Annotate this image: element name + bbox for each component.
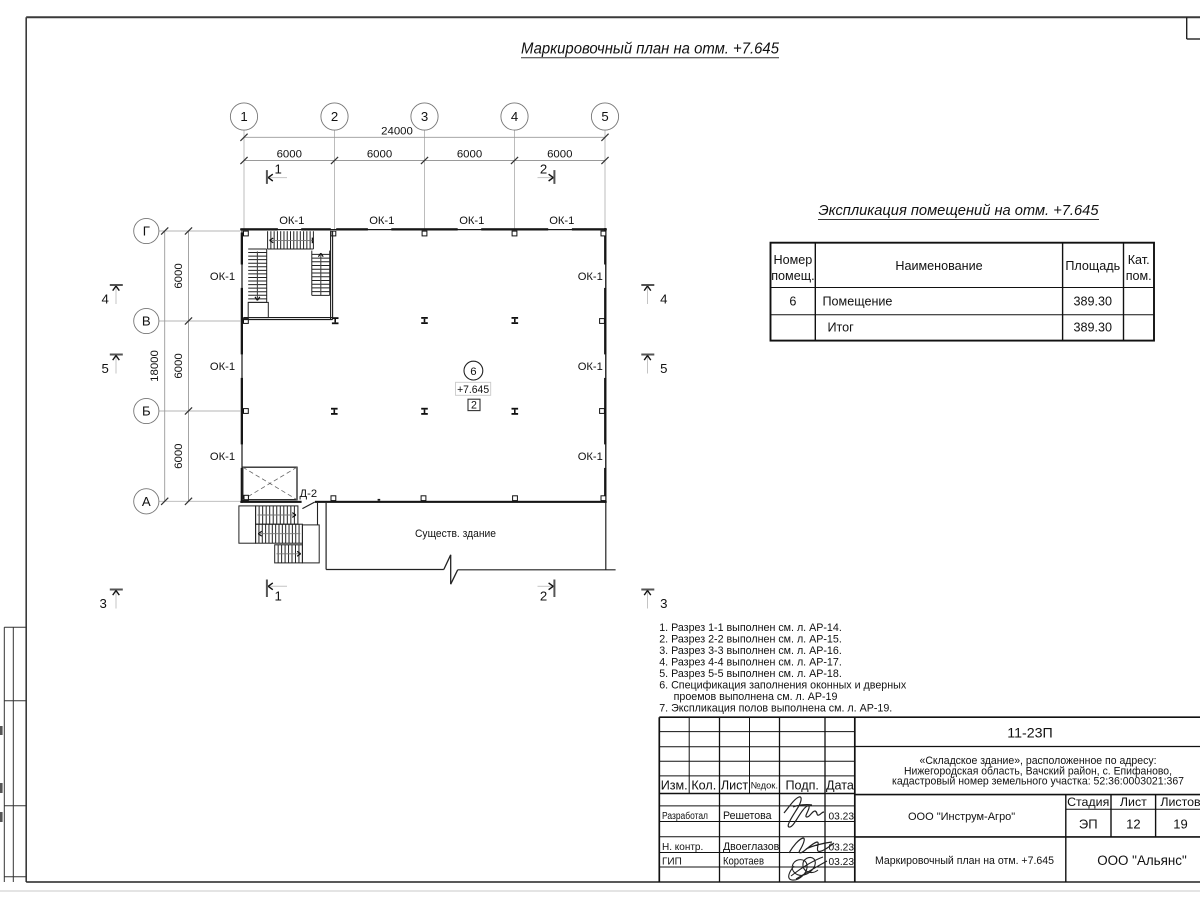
svg-text:Д-2: Д-2 — [300, 488, 318, 500]
svg-text:Маркировочный план на отм. +7.: Маркировочный план на отм. +7.645 — [521, 41, 779, 58]
svg-text:6000: 6000 — [173, 353, 185, 378]
svg-text:А: А — [142, 494, 151, 509]
svg-text:Разработал: Разработал — [662, 810, 708, 822]
svg-text:5. Разрез 5-5 выполнен см. л.: 5. Разрез 5-5 выполнен см. л. АР-18. — [659, 668, 842, 680]
svg-text:4: 4 — [102, 292, 109, 307]
svg-text:6000: 6000 — [367, 148, 392, 160]
svg-text:Существ. здание: Существ. здание — [415, 528, 496, 540]
svg-text:2: 2 — [540, 162, 547, 177]
svg-text:2: 2 — [331, 109, 338, 124]
svg-text:ОК-1: ОК-1 — [210, 451, 235, 463]
svg-text:№док.: №док. — [751, 779, 778, 790]
svg-text:3. Разрез 3-3 выполнен см. л.: 3. Разрез 3-3 выполнен см. л. АР-16. — [659, 645, 842, 657]
svg-text:помещ.: помещ. — [771, 269, 814, 283]
svg-text:В: В — [142, 314, 151, 329]
svg-text:ГИП: ГИП — [662, 856, 682, 867]
svg-text:Стадия: Стадия — [1067, 795, 1109, 809]
svg-text:Итог: Итог — [828, 321, 855, 335]
svg-text:4. Разрез 4-4 выполнен см. л.: 4. Разрез 4-4 выполнен см. л. АР-17. — [659, 656, 842, 668]
svg-text:Наименование: Наименование — [895, 259, 982, 273]
svg-text:6. Спецификация заполнения око: 6. Спецификация заполнения оконных и две… — [659, 680, 907, 692]
svg-text:ОК-1: ОК-1 — [369, 215, 394, 227]
svg-text:ООО "Инструм-Агро": ООО "Инструм-Агро" — [908, 811, 1015, 823]
svg-text:кадастровый номер земельного у: кадастровый номер земельного участка: 52… — [892, 776, 1184, 788]
svg-text:Подп.: Подп. — [785, 778, 818, 792]
svg-text:6000: 6000 — [457, 148, 482, 160]
svg-text:Н. контр.: Н. контр. — [662, 842, 703, 853]
svg-text:6000: 6000 — [173, 263, 185, 288]
svg-text:ОК-1: ОК-1 — [210, 271, 235, 283]
svg-text:проемов выполнена см. л. АР-19: проемов выполнена см. л. АР-19 — [674, 691, 838, 703]
svg-text:389.30: 389.30 — [1074, 321, 1113, 335]
svg-text:ОК-1: ОК-1 — [549, 215, 574, 227]
svg-text:3: 3 — [660, 596, 667, 611]
svg-text:ОК-1: ОК-1 — [578, 361, 603, 373]
svg-text:Кол.: Кол. — [691, 778, 716, 792]
svg-text:6000: 6000 — [547, 148, 572, 160]
svg-text:1: 1 — [275, 162, 282, 177]
svg-text:4: 4 — [660, 292, 667, 307]
svg-text:12: 12 — [1126, 817, 1140, 832]
svg-text:ООО "Альянс": ООО "Альянс" — [1097, 853, 1187, 868]
svg-text:5: 5 — [102, 361, 109, 376]
svg-text:6: 6 — [470, 366, 476, 378]
svg-text:2. Разрез 2-2 выполнен см. л.: 2. Разрез 2-2 выполнен см. л. АР-15. — [659, 633, 842, 645]
svg-text:ОК-1: ОК-1 — [210, 361, 235, 373]
svg-text:Экспликация помещений на отм.: Экспликация помещений на отм. +7.645 — [819, 202, 1100, 219]
svg-text:Изм.: Изм. — [661, 778, 688, 792]
svg-text:24000: 24000 — [381, 126, 413, 138]
svg-text:5: 5 — [601, 109, 608, 124]
svg-text:2: 2 — [540, 589, 547, 604]
svg-text:Г: Г — [143, 224, 150, 239]
svg-text:Кат.: Кат. — [1128, 253, 1150, 267]
svg-text:Лист: Лист — [1120, 795, 1147, 809]
svg-text:6000: 6000 — [277, 148, 302, 160]
svg-text:ЭП: ЭП — [1079, 817, 1098, 832]
svg-text:Двоеглазов: Двоеглазов — [723, 841, 780, 853]
svg-text:Помещение: Помещение — [823, 295, 893, 309]
svg-text:ОК-1: ОК-1 — [459, 215, 484, 227]
svg-text:Номер: Номер — [774, 253, 813, 267]
svg-text:3: 3 — [421, 109, 428, 124]
svg-text:18000: 18000 — [149, 350, 161, 382]
svg-text:11-23П: 11-23П — [1007, 725, 1052, 741]
svg-text:Маркировочный план на отм. +7.: Маркировочный план на отм. +7.645 — [875, 855, 1054, 867]
svg-text:Решетова: Решетова — [723, 810, 772, 822]
svg-text:пом.: пом. — [1126, 269, 1152, 283]
svg-text:Лист: Лист — [721, 778, 749, 792]
svg-text:Коротаев: Коротаев — [723, 855, 764, 867]
svg-text:Б: Б — [142, 404, 151, 419]
svg-text:4: 4 — [511, 109, 518, 124]
svg-text:5: 5 — [660, 361, 667, 376]
svg-text:3: 3 — [100, 596, 107, 611]
svg-text:19: 19 — [1173, 817, 1187, 832]
svg-text:389.30: 389.30 — [1074, 295, 1113, 309]
svg-text:Листов: Листов — [1160, 795, 1200, 809]
svg-text:7. Экспликация полов выполнена: 7. Экспликация полов выполнена см. л. АР… — [659, 703, 892, 715]
svg-text:6: 6 — [789, 295, 796, 309]
svg-text:03.23: 03.23 — [829, 857, 855, 868]
svg-text:1: 1 — [275, 589, 282, 604]
svg-text:Площадь: Площадь — [1065, 259, 1120, 273]
svg-text:1. Разрез 1-1 выполнен см. л.: 1. Разрез 1-1 выполнен см. л. АР-14. — [659, 622, 842, 634]
svg-text:ОК-1: ОК-1 — [578, 271, 603, 283]
svg-text:1: 1 — [240, 109, 247, 124]
svg-text:2: 2 — [471, 399, 477, 411]
svg-text:ОК-1: ОК-1 — [279, 215, 304, 227]
svg-text:6000: 6000 — [173, 443, 185, 468]
svg-text:+7.645: +7.645 — [457, 384, 489, 396]
svg-text:03.23: 03.23 — [829, 811, 855, 822]
svg-text:Дата: Дата — [826, 778, 854, 792]
svg-text:ОК-1: ОК-1 — [578, 451, 603, 463]
